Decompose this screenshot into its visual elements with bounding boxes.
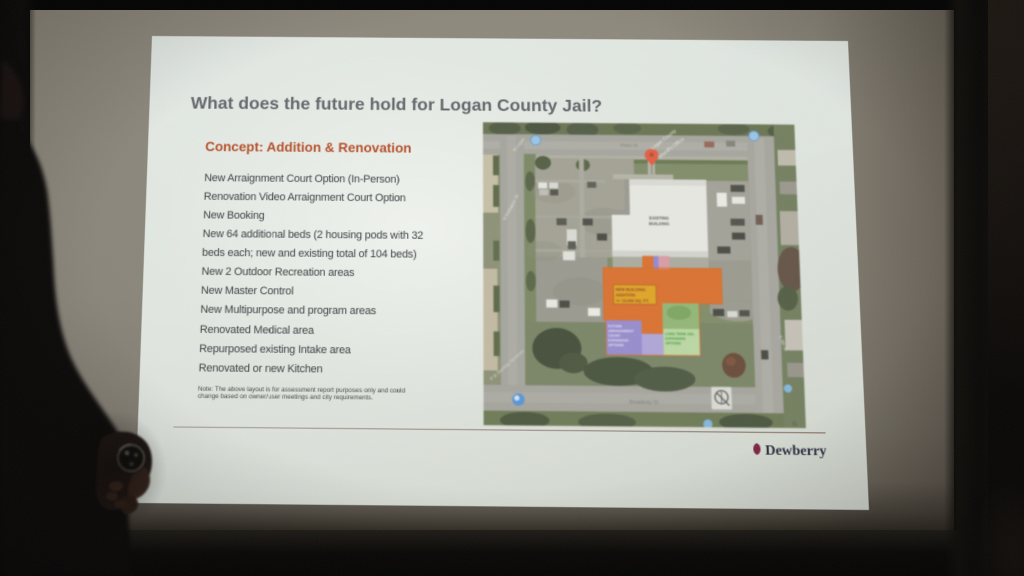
svg-text:Dewberry: Dewberry (765, 442, 827, 459)
